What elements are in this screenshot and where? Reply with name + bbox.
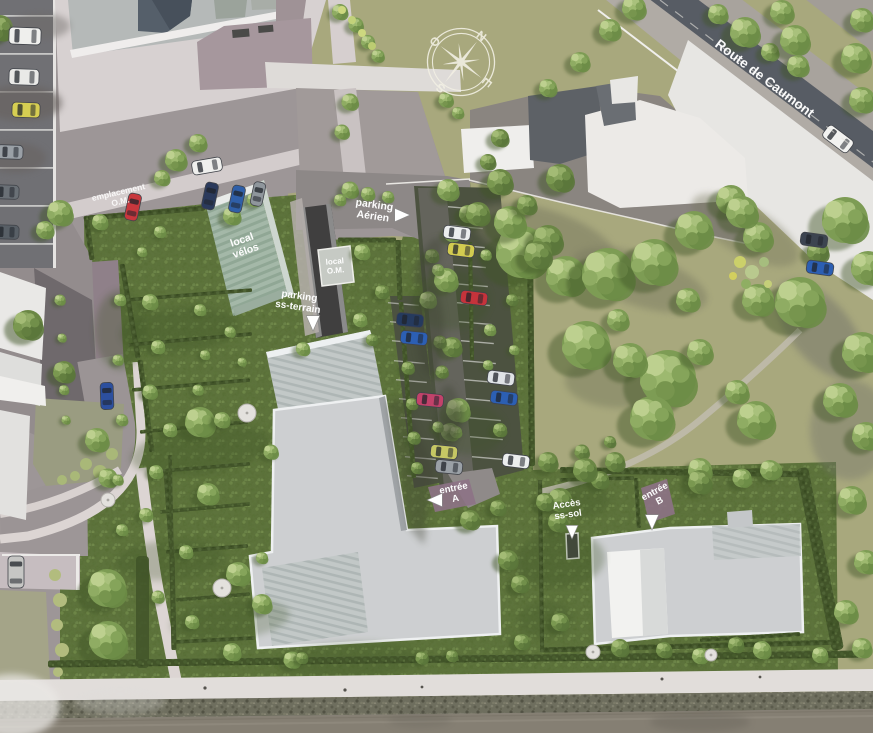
- svg-text:localO.M.: localO.M.: [325, 256, 345, 276]
- svg-text:Accèsss-sol: Accèsss-sol: [552, 497, 583, 522]
